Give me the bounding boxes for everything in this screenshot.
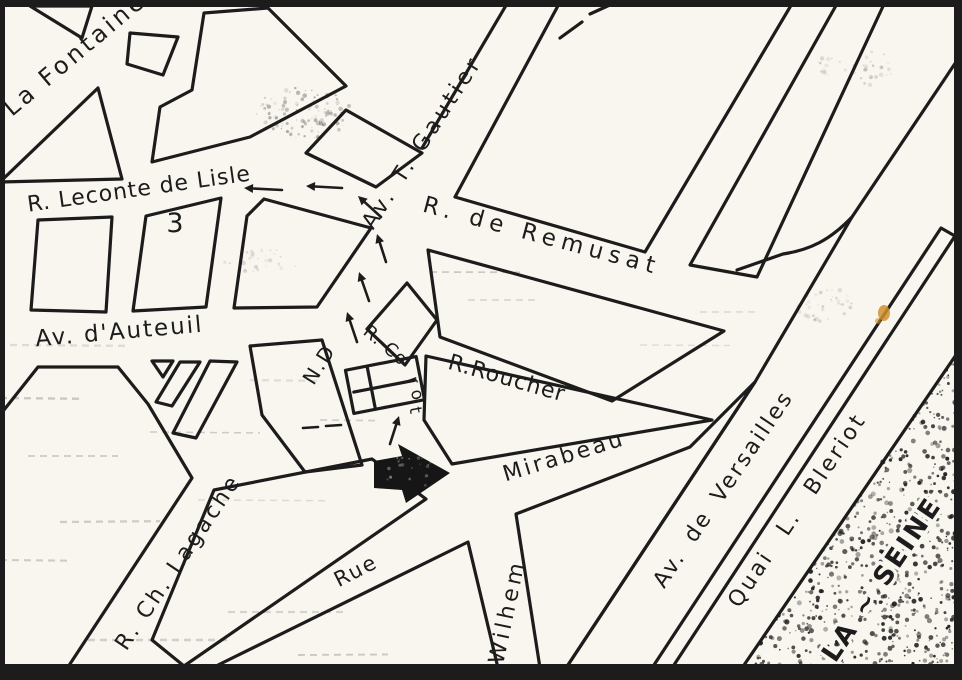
destination-arrow-icon [374,444,450,503]
city-block [0,367,192,667]
route-arrow-head [346,312,355,322]
frame-top [0,0,962,7]
route-arrow-head [306,182,315,191]
route-arrow-head [358,272,367,282]
route-arrow-shaft [362,281,369,302]
route-arrow-shaft [315,187,342,189]
frame-bottom [0,664,962,680]
route-arrow-head [392,416,401,426]
street-label-wilhem: Wilhem [484,557,531,666]
route-arrow-head [376,234,385,244]
market-stall [173,361,237,438]
frame-right [954,0,962,680]
route-arrow-shaft [390,425,396,444]
city-block [152,8,346,162]
median-strip-block [652,228,955,668]
river-label-seine: LA ~ SEINE [816,491,948,667]
street-label-remusat: R. de Remusat [420,192,663,281]
street-label-la-fontaine: La Fontaine [0,0,152,122]
median-strip-block [690,2,885,277]
route-arrow-shaft [380,243,386,262]
city-block [127,33,178,75]
city-block [516,382,755,668]
city-block [250,340,362,472]
street-label-rue: Rue [330,550,382,592]
route-dash [303,425,341,428]
market-stall [156,362,200,406]
map-canvas: La Fontaine R. Leconte de Lisle 3 Av. T.… [0,0,962,680]
frame-left [0,0,5,680]
market-stalls-icon [152,361,237,438]
route-arrow-shaft [350,321,357,343]
route-arrow-shaft [253,189,282,191]
scanned-map: La Fontaine R. Leconte de Lisle 3 Av. T.… [0,0,962,680]
street-label-auteuil: Av. d'Auteuil [34,312,204,353]
street-label-corot-letter: t [404,405,425,415]
boundary-dash-line [560,4,612,38]
block-number-label: 3 [166,208,183,239]
city-block [234,199,371,308]
church-icon [345,357,424,414]
scan-stain [875,318,881,324]
market-stall [152,361,173,377]
city-block [31,217,112,312]
street-label-roucher: R.Roucher [445,350,568,407]
